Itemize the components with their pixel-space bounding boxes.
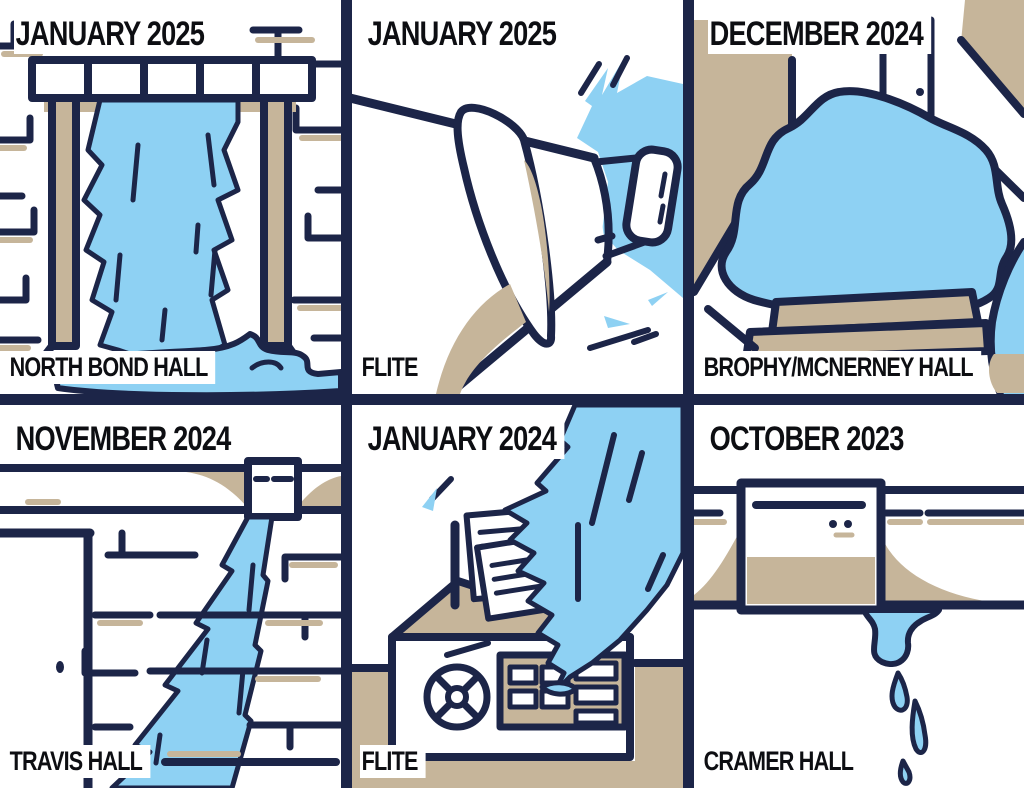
panel-flite-2024: JANUARY 2024 FLITE [352, 405, 683, 788]
panel-date: DECEMBER 2024 [708, 14, 987, 54]
panel-location: FLITE [360, 745, 442, 778]
panel-date: OCTOBER 2023 [708, 419, 962, 459]
panel-date: JANUARY 2025 [366, 14, 614, 54]
panel-location: TRAVIS HALL [8, 745, 186, 778]
floor-line [165, 754, 336, 762]
panel-cramer-hall: OCTOBER 2023 CRAMER HALL [694, 405, 1024, 788]
panel-flite-2025: JANUARY 2025 FLITE [352, 0, 683, 394]
panel-date: NOVEMBER 2024 [14, 419, 295, 459]
panel-location: NORTH BOND HALL [8, 351, 267, 384]
panel-location: CRAMER HALL [702, 745, 901, 778]
wall-leak-illustration [0, 405, 341, 788]
panel-location: FLITE [360, 351, 442, 384]
light-fixture-box [741, 483, 881, 610]
panel-date: JANUARY 2024 [366, 419, 614, 459]
burst-pipe-illustration [352, 0, 683, 394]
panel-travis-hall: NOVEMBER 2024 TRAVIS HALL [0, 405, 341, 788]
ceiling-drip-illustration [694, 405, 1024, 788]
brick-wall-right [294, 108, 341, 338]
panel-date: JANUARY 2025 [14, 14, 262, 54]
panel-location: BROPHY/MCNERNEY HALL [702, 351, 1024, 384]
panel-north-bond-hall: JANUARY 2025 NORTH BOND HALL [0, 0, 341, 394]
flooded-floor-illustration [694, 0, 1024, 394]
splash-drops [590, 292, 668, 348]
equipment-flood-illustration [352, 405, 683, 788]
comic-grid: JANUARY 2025 NORTH BOND HALL [0, 0, 1024, 788]
panel-brophy-mcnerney: DECEMBER 2024 BROPHY/MCNERNEY HALL [694, 0, 1024, 394]
water-cascade [84, 100, 238, 360]
doorway-flood-illustration [0, 0, 341, 394]
ceiling-fixture [248, 461, 298, 517]
